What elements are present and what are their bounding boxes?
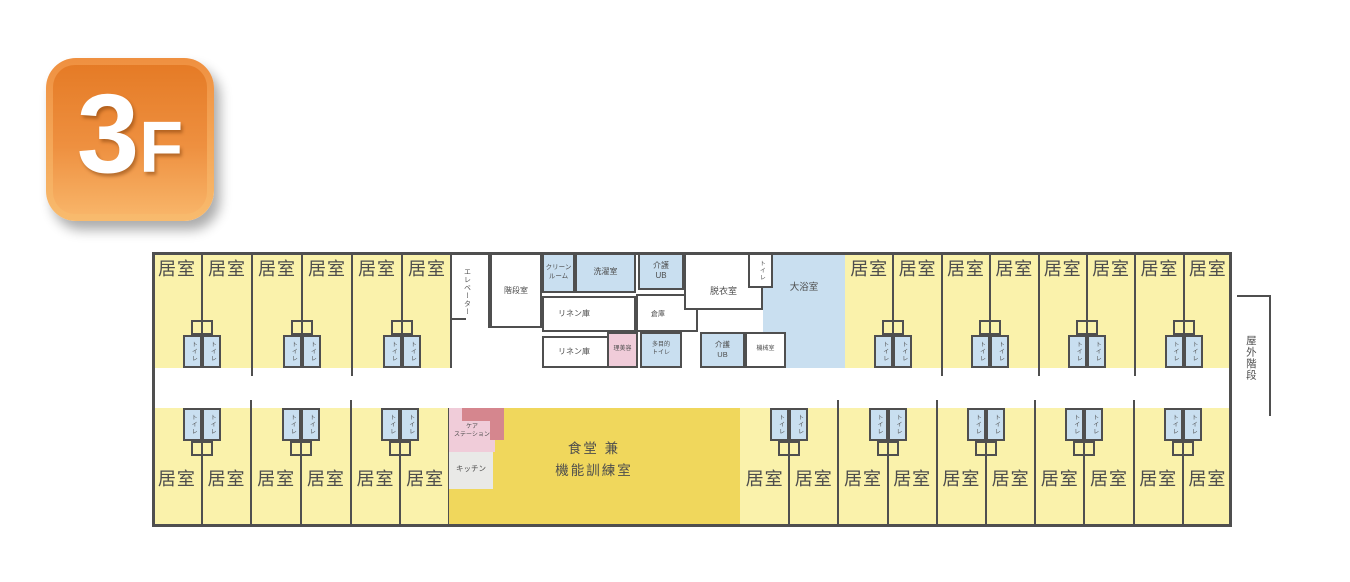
- floor-plan-page: 3 F 居室居室居室居室居室居室トイレトイレトイレトイレトイレトイレ居室居室居室…: [0, 0, 1350, 582]
- outdoor-stairs-label: 屋外階段: [1242, 308, 1258, 408]
- building-outline: [152, 252, 1232, 527]
- floor-plan: 居室居室居室居室居室居室トイレトイレトイレトイレトイレトイレ居室居室居室居室居室…: [0, 0, 1350, 582]
- outdoor-stairs-wall-right: [1269, 295, 1271, 416]
- outdoor-stairs-wall-top: [1237, 295, 1271, 297]
